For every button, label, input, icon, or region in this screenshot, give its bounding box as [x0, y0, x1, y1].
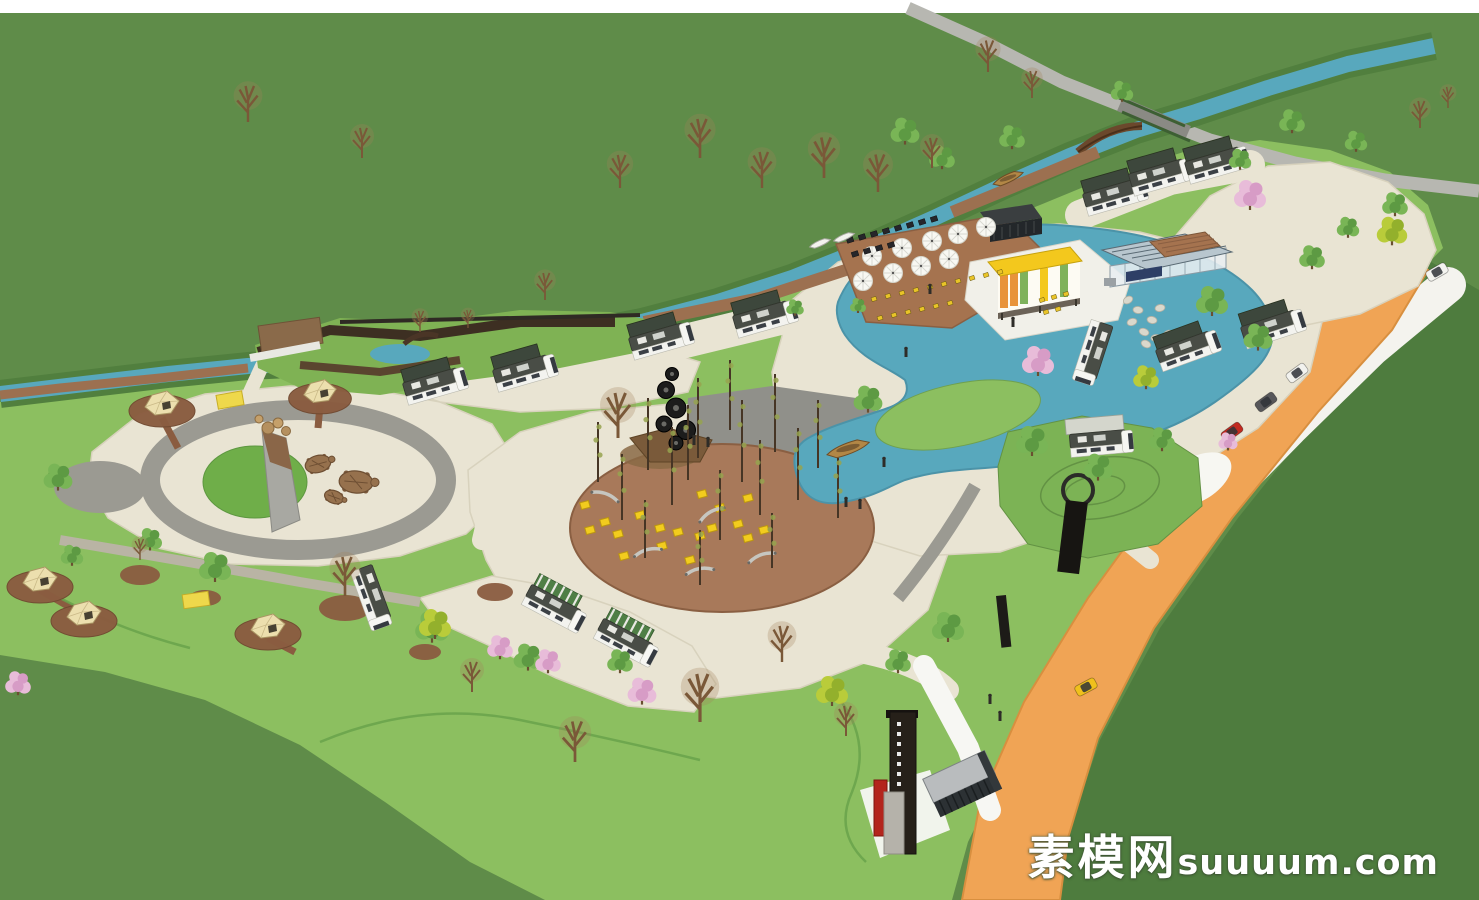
umbrella [854, 272, 873, 291]
picnic-mat [182, 591, 210, 608]
umbrella [923, 232, 942, 251]
person [882, 457, 886, 467]
person [988, 694, 992, 704]
camp-pad [120, 565, 160, 585]
umbrella [893, 239, 912, 258]
watermark: 素模网suuuum.com [1027, 819, 1439, 888]
umbrella [977, 218, 996, 237]
person [998, 711, 1002, 721]
person [692, 435, 696, 445]
person [904, 347, 908, 357]
umbrella [949, 225, 968, 244]
person [844, 497, 848, 507]
person [1011, 317, 1015, 327]
camp-pad [477, 583, 513, 601]
umbrella [912, 257, 931, 276]
person [928, 284, 932, 294]
person [858, 499, 862, 509]
person [706, 437, 710, 447]
campground-masterplan-render: 素模网suuuum.com [0, 0, 1479, 900]
watermark-latin: suuuum.com [1177, 843, 1439, 883]
watermark-cjk: 素模网 [1027, 831, 1177, 886]
umbrella [884, 264, 903, 283]
sky-strip [0, 0, 1479, 13]
concrete-plinth [884, 792, 904, 854]
aerial-scene [0, 0, 1479, 900]
camp-pad [409, 644, 441, 660]
umbrella [940, 250, 959, 269]
